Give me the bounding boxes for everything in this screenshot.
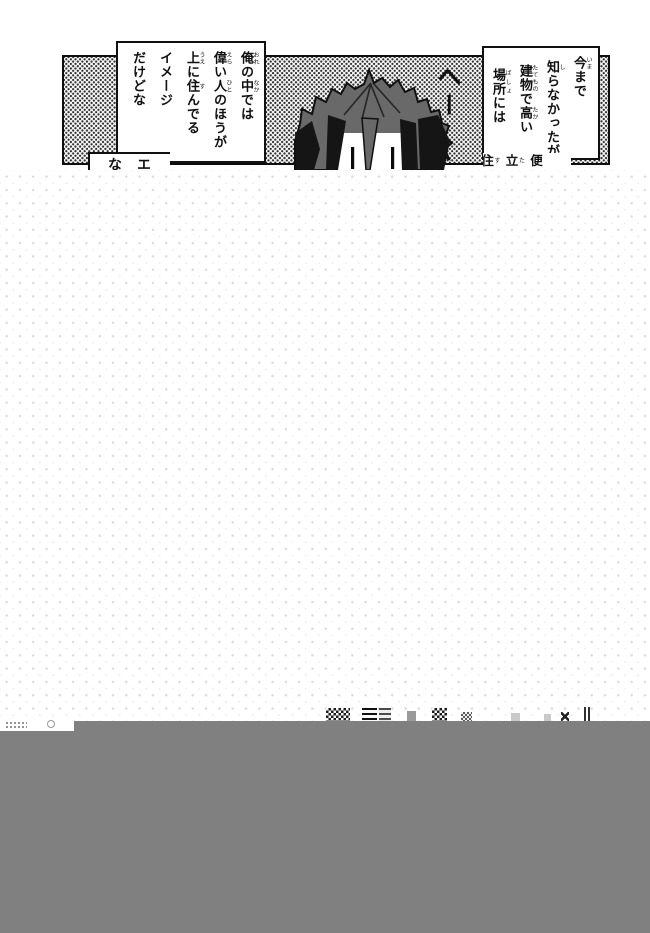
text-column: な: [99, 157, 128, 170]
gray-bar: [0, 721, 650, 933]
text-column: 建物たてもので高たかい: [511, 56, 538, 158]
speech-bubble-partial-right: 便立た住す: [483, 153, 571, 170]
fragment-mark-a: [511, 713, 520, 721]
fragment-xmark: [561, 712, 569, 721]
speech-text-partial-right: 便立た住す: [483, 154, 547, 167]
speckle-pattern: [5, 721, 27, 730]
manga-page: へー 今いままで知しらなかったが建物たてもので高たかい場所ばしょには 俺おれの中…: [0, 0, 650, 933]
fragment-mark-b: [544, 714, 551, 721]
fragment-stripes-b: [379, 708, 391, 721]
fragment-checker-a: [326, 708, 350, 721]
fragment-smudge: [407, 711, 416, 721]
hair-bang-right: [400, 119, 418, 170]
fragment-strip: [0, 707, 650, 721]
text-column: 便: [524, 154, 547, 167]
text-column: 立た: [500, 154, 525, 167]
text-column: 上うえに住すんでる: [178, 51, 205, 149]
blank-overlay: [0, 170, 650, 721]
text-column: 俺おれの中なかでは: [232, 51, 259, 149]
text-column: 場所ばしょには: [484, 56, 511, 158]
hair-side-right: [418, 115, 450, 170]
text-column: 知しらなかったが: [538, 56, 565, 158]
bottom-left-notch: [0, 719, 74, 731]
speech-bubble-partial-left: エな: [88, 152, 170, 170]
text-column: エ: [128, 157, 157, 170]
text-column: イメージ: [151, 51, 178, 149]
speech-bubble-left: 俺おれの中なかでは偉えらい人ひとのほうが上うえに住すんでるイメージだけどな: [116, 41, 266, 163]
text-column: だけどな: [124, 51, 151, 149]
text-column: 住す: [483, 154, 500, 167]
text-column: 偉えらい人ひとのほうが: [205, 51, 232, 149]
fragment-bars: [584, 707, 590, 721]
eye-right: [391, 147, 394, 169]
eye-left: [351, 147, 354, 169]
speech-bubble-right: 今いままで知しらなかったが建物たてもので高たかい場所ばしょには: [482, 46, 600, 160]
speech-text-partial-left: エな: [99, 157, 157, 170]
ring-mark: [47, 720, 55, 728]
fragment-checker-c: [461, 712, 472, 721]
speech-text-left: 俺おれの中なかでは偉えらい人ひとのほうが上うえに住すんでるイメージだけどな: [124, 51, 259, 149]
sfx-hee: へー: [430, 64, 465, 122]
speech-text-right: 今いままで知しらなかったが建物たてもので高たかい場所ばしょには: [484, 56, 592, 158]
fragment-stripes-a: [362, 708, 377, 721]
text-column: 今いままで: [565, 56, 592, 158]
fragment-checker-b: [432, 708, 447, 721]
